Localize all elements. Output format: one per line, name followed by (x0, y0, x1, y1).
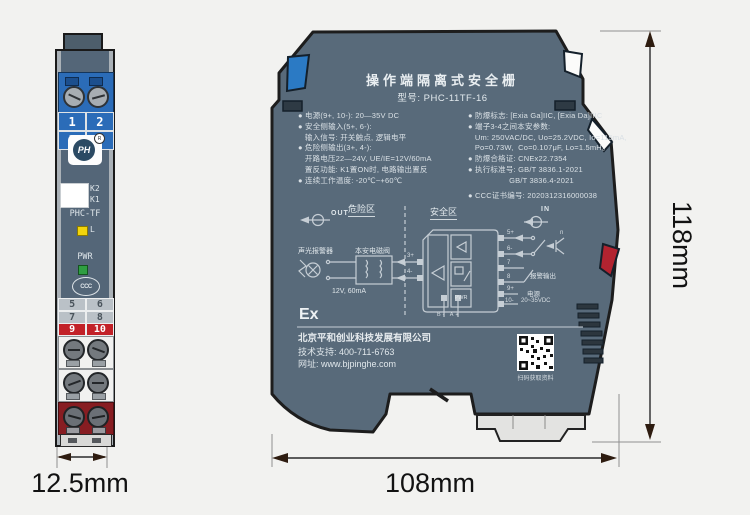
screw-slot (92, 382, 105, 384)
spec-line: ● 执行标准号: GB/T 3836.1-2021 (468, 165, 646, 176)
k1-label: K1 (90, 195, 100, 204)
brand-logo-text: PH (78, 145, 91, 155)
terminal-5-label: 5+ (507, 230, 514, 236)
terminal-screw (87, 406, 109, 428)
alarm-device-label: 声光报警器 (298, 246, 333, 256)
terminal-6-label: 6- (507, 246, 512, 252)
k2-label: K2 (90, 184, 100, 193)
terminal-number: 10 (87, 324, 113, 335)
screw-slot (68, 349, 81, 351)
clamp-bar (92, 393, 106, 400)
pwr-block-label: PWR (451, 295, 471, 301)
clamp-bar (66, 393, 80, 400)
bus-pins-label: B- A+ (437, 312, 461, 318)
front-terminal-red (58, 402, 114, 435)
hazard-zone-label: 危险区 (348, 202, 375, 217)
npn-label: n (560, 230, 563, 236)
screw-slot (68, 93, 80, 100)
terminal-screw (87, 86, 109, 108)
terminal-screw (63, 406, 85, 428)
qr-caption: 扫码获取资料 (513, 373, 558, 382)
clamp-bar (66, 360, 80, 367)
ccc-mark: CCC (72, 277, 100, 296)
website-line: 网址: www.bjpinghe.com (298, 358, 528, 371)
terminal-number: 8 (87, 312, 113, 323)
out-label: OUT (331, 210, 349, 217)
side-title: 操作端隔离式安全栅 (310, 70, 575, 89)
front-terminal-white-1 (58, 336, 114, 369)
screw-slot (92, 94, 105, 99)
wire-slot (65, 77, 79, 86)
terminal-3-label: 3+ (407, 253, 414, 259)
power-label: 电源 (527, 288, 540, 298)
wire-slot (89, 77, 103, 86)
terminal-number-grid-bottom: 5 6 7 8 9 10 (58, 298, 114, 336)
brand-logo-circle: PH (73, 139, 95, 161)
terminal-screw (87, 339, 109, 361)
in-label: IN (541, 206, 550, 213)
spec-line: 开路电压22—24V, UE/IE=12V/60mA (298, 154, 468, 165)
terminal-screw (63, 86, 85, 108)
front-terminal-white-2 (58, 369, 114, 402)
front-model-label: PHC-TF (58, 209, 112, 219)
terminal-4-label: 4- (407, 269, 412, 275)
side-slot-left (283, 101, 302, 111)
dimension-height: 118mm (667, 190, 697, 300)
red-terminal-wedge (600, 244, 619, 276)
spec-line: ● 危险侧输出(3+, 4-): (298, 143, 468, 154)
screw-slot (92, 415, 105, 419)
brand-logo: PH R (68, 135, 102, 165)
front-foot (60, 434, 112, 447)
company-name: 北京平和创业科技发展有限公司 (298, 333, 528, 346)
load-rating-label: 12V, 60mA (332, 288, 366, 295)
terminal-screw (87, 372, 109, 394)
terminal-8-label: 8 (507, 274, 510, 280)
spec-line: ● CCC证书编号: 2020312316000038 (468, 191, 646, 202)
registered-mark: R (94, 133, 105, 144)
foot-notch (68, 438, 77, 443)
din-clip (477, 415, 585, 441)
specs-right-column: ● 防爆标志: [Exia Ga]IIC, [Exia Da]IIIC ● 端子… (468, 111, 646, 201)
terminal-number: 5 (59, 299, 85, 310)
module-front-view: 1 2 3 4 PH R K2 K1 PHC-TF L PWR CCC (0, 0, 160, 470)
ccc-text: CCC (80, 284, 92, 290)
dimension-width: 108mm (355, 468, 505, 499)
side-model-line: 型号: PHC-11TF-16 (310, 90, 575, 104)
blue-terminal-wedge (287, 55, 309, 91)
spec-line: ● 安全侧输入(5+, 6-): (298, 122, 468, 133)
terminal-screw (63, 372, 85, 394)
clamp-bar (92, 360, 106, 367)
terminal-9-label: 9+ (507, 286, 514, 292)
spec-line: ● 端子3-4之间本安参数: (468, 122, 646, 133)
terminal-number: 1 (59, 113, 85, 130)
screw-slot (92, 347, 105, 353)
spec-line: ● 防爆标志: [Exia Ga]IIC, [Exia Da]IIIC (468, 111, 646, 122)
front-terminal-blue (58, 72, 114, 113)
spec-line: Um: 250VAC/DC, Uo=25.2VDC, Io=115mA, (468, 133, 646, 144)
dimension-depth: 12.5mm (20, 468, 140, 499)
power-range-label: 20~35VDC (521, 298, 551, 304)
clamp-bar (66, 427, 80, 434)
screw-slot (68, 380, 81, 386)
led-pwr (78, 265, 88, 275)
company-info: 北京平和创业科技发展有限公司 技术支持: 400-711-6763 网址: ww… (298, 333, 528, 371)
product-drawing: 1 2 3 4 PH R K2 K1 PHC-TF L PWR CCC (0, 0, 750, 515)
pwr-label: PWR (58, 252, 112, 262)
terminal-number: 2 (87, 113, 113, 130)
terminal-7-label: 7 (507, 260, 510, 266)
terminal-number: 9 (59, 324, 85, 335)
terminal-number: 7 (59, 312, 85, 323)
specs-left-column: ● 电源(9+, 10-): 20—35V DC ● 安全侧输入(5+, 6-)… (298, 111, 468, 187)
led-l (77, 226, 88, 236)
terminal-number: 6 (87, 299, 113, 310)
screw-slot (68, 414, 81, 419)
ex-mark: Ex (299, 306, 319, 324)
terminal-screw (63, 339, 85, 361)
spec-line: ● 连续工作温度: -20℃~+60℃ (298, 176, 468, 187)
support-line: 技术支持: 400-711-6763 (298, 346, 528, 359)
spec-line: ● 电源(9+, 10-): 20—35V DC (298, 111, 468, 122)
spec-line: ● 防爆合格证: CNEx22.7354 (468, 154, 646, 165)
spec-line: GB/T 3836.4-2021 (468, 176, 646, 187)
spec-line: 置反功能: K1置ON时, 电路输出置反 (298, 165, 468, 176)
registered-letter: R (98, 136, 102, 142)
alarm-output-label: 报警输出 (530, 270, 556, 280)
foot-notch (92, 438, 101, 443)
safe-zone-label: 安全区 (430, 205, 457, 220)
clamp-bar (92, 427, 106, 434)
solenoid-label: 本安电磁阀 (355, 246, 390, 256)
spec-line: 输入信号: 开关触点, 逻辑电平 (298, 133, 468, 144)
spec-line: Po=0.73W, Co=0.107μF, Lo=1.5mH。 (468, 143, 646, 154)
led-l-label: L (90, 225, 95, 234)
dip-switch-window (60, 183, 89, 208)
terminal-10-label: 10- (505, 298, 514, 304)
